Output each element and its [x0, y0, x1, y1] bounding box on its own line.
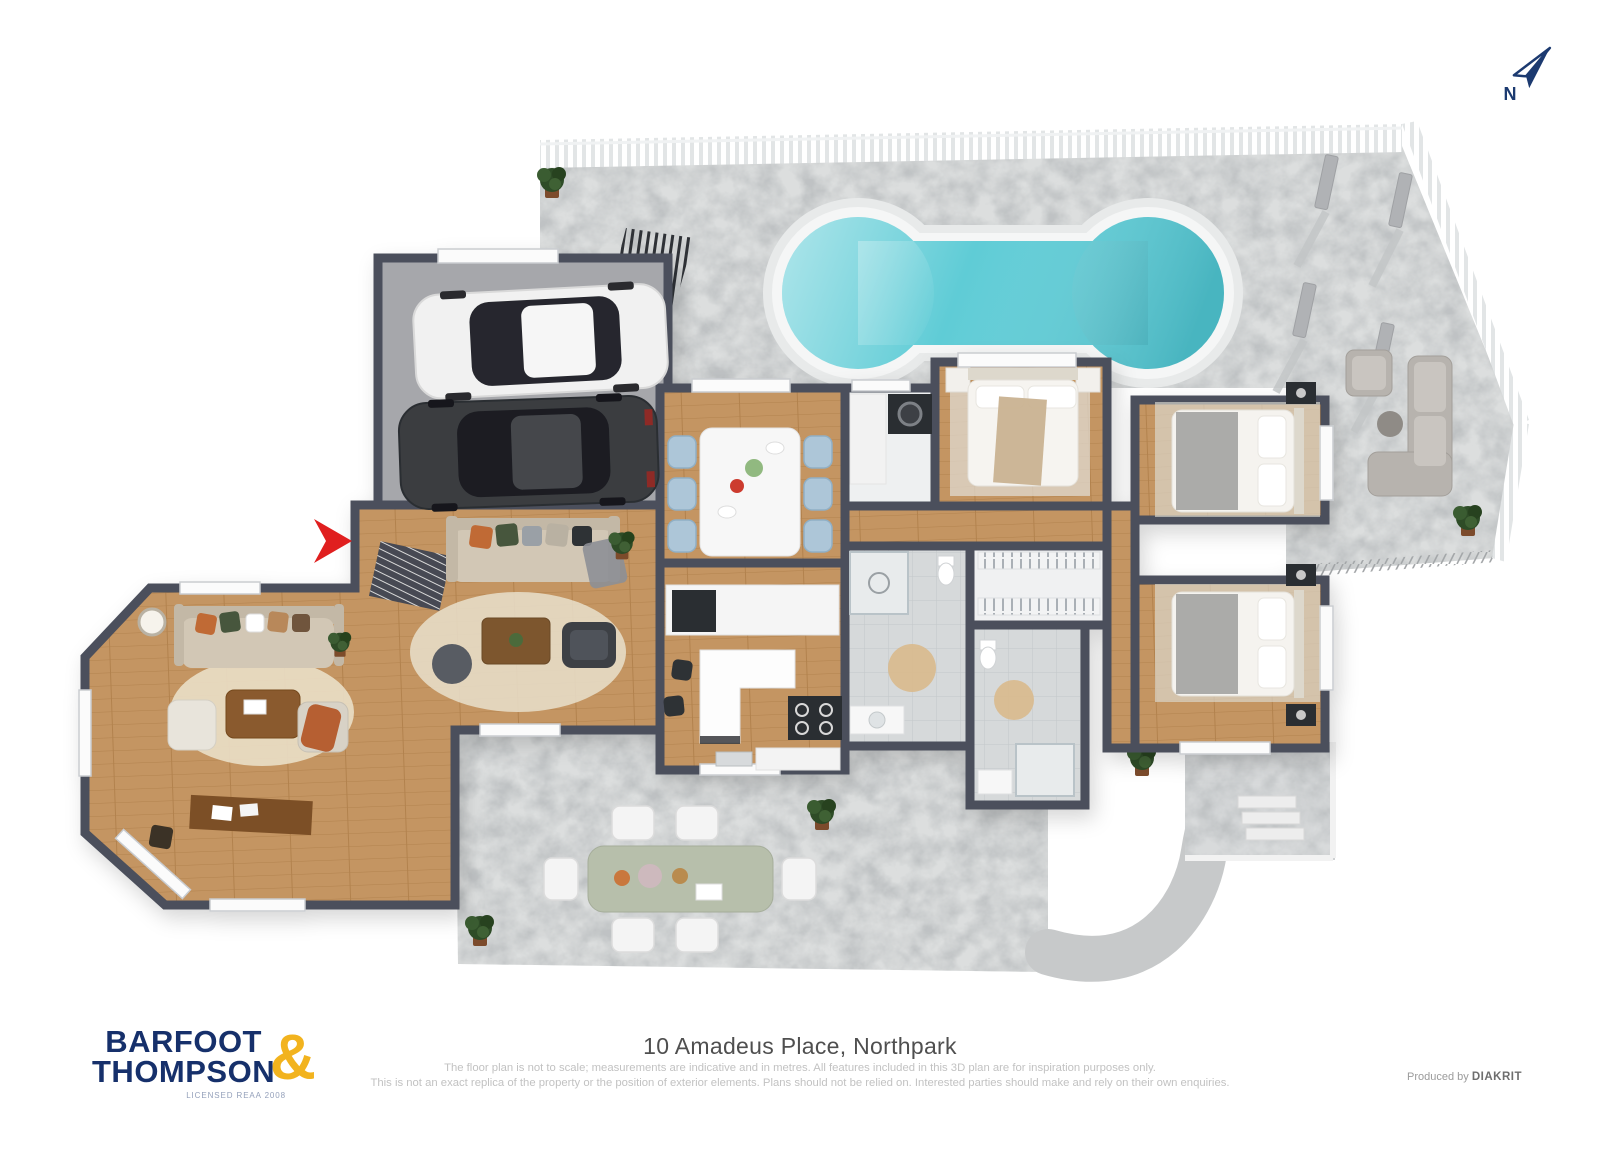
porch-steps: [1238, 796, 1304, 840]
sink: [716, 752, 752, 766]
producer-name: DIAKRIT: [1472, 1071, 1522, 1083]
pouf: [432, 644, 472, 684]
toilet: [980, 640, 996, 669]
sofa: [446, 516, 628, 589]
property-title: 10 Amadeus Place, Northpark: [0, 1033, 1600, 1060]
bath-rug: [994, 680, 1034, 720]
shower: [1016, 744, 1074, 796]
bar-stool: [671, 659, 694, 682]
dark-car: [398, 392, 660, 513]
bed-3: [1155, 564, 1320, 726]
produced-by-label: Produced by: [1407, 1071, 1472, 1083]
bath-rug: [888, 644, 936, 692]
master-bed: [946, 368, 1100, 496]
shower: [850, 552, 908, 614]
hallway: [845, 506, 1135, 546]
produced-by: Produced by DIAKRIT: [1407, 1071, 1522, 1083]
page: { "compass": { "label": "N" }, "plan": {…: [0, 0, 1600, 1167]
wall-clock: [139, 609, 165, 635]
armchair: [168, 700, 216, 750]
dining-table: [700, 428, 800, 556]
floor-plan-render: N: [0, 0, 1600, 1167]
compass-north-label: N: [1504, 84, 1517, 104]
fridge: [672, 590, 716, 632]
white-suv: [412, 280, 669, 403]
entrance-arrow: [314, 519, 352, 563]
disclaimer-line-1: The floor plan is not to scale; measurem…: [0, 1062, 1600, 1074]
dining-set: [668, 428, 832, 556]
disclaimer-line-2: This is not an exact replica of the prop…: [0, 1077, 1600, 1089]
porch: [1185, 742, 1335, 860]
stove: [788, 696, 842, 740]
vanity: [978, 770, 1012, 794]
compass: N: [1504, 42, 1558, 104]
lounge-sofa: [174, 604, 344, 668]
bed-2: [1155, 382, 1320, 517]
bar-stool: [663, 695, 685, 717]
toilet: [938, 556, 954, 585]
